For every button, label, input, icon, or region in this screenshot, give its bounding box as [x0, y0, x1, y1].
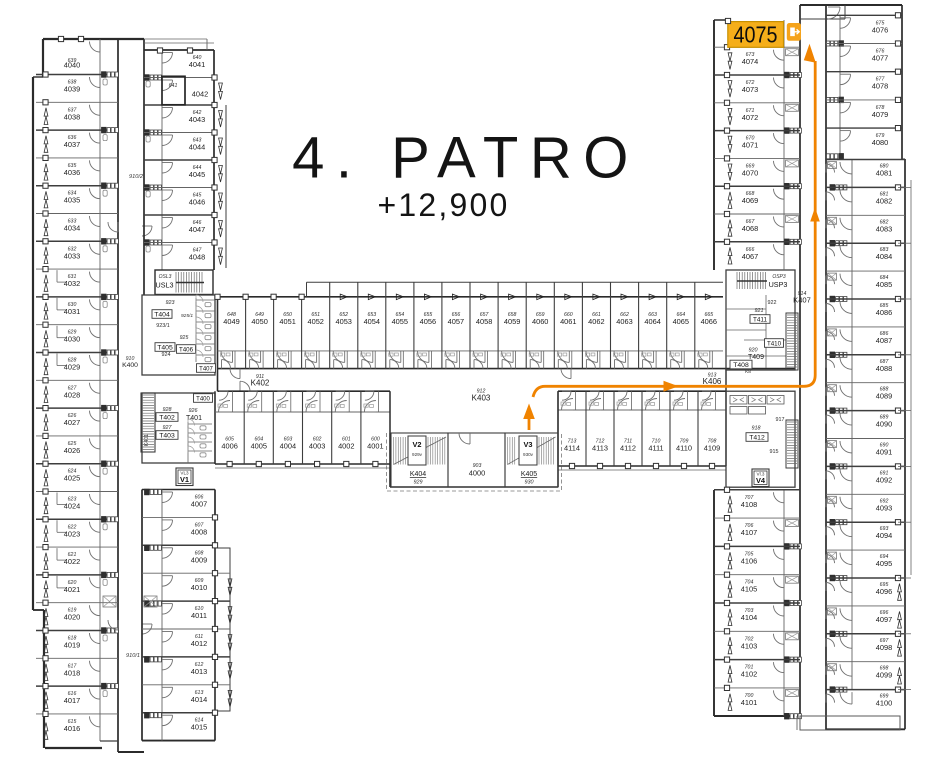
svg-text:4002: 4002 — [338, 442, 354, 451]
svg-text:4063: 4063 — [616, 317, 632, 326]
svg-text:927: 927 — [163, 425, 173, 431]
svg-text:OSL3: OSL3 — [159, 274, 172, 280]
svg-text:4003: 4003 — [309, 442, 325, 451]
svg-text:923: 923 — [166, 300, 175, 306]
svg-text:4070: 4070 — [742, 168, 758, 177]
svg-text:4024: 4024 — [64, 502, 80, 511]
svg-text:K8: K8 — [745, 369, 751, 375]
svg-text:4111: 4111 — [648, 444, 663, 453]
svg-text:4103: 4103 — [741, 641, 757, 650]
svg-text:4073: 4073 — [742, 85, 758, 94]
svg-text:4043: 4043 — [189, 115, 205, 124]
svg-text:4064: 4064 — [644, 317, 660, 326]
svg-text:920: 920 — [749, 348, 758, 354]
svg-text:K401: K401 — [144, 434, 150, 446]
svg-text:4001: 4001 — [367, 442, 383, 451]
svg-text:910/2: 910/2 — [129, 174, 144, 180]
svg-text:4074: 4074 — [742, 57, 758, 66]
svg-text:4040: 4040 — [64, 61, 80, 70]
svg-text:4071: 4071 — [742, 141, 758, 150]
svg-text:4021: 4021 — [64, 585, 80, 594]
svg-text:T406: T406 — [179, 346, 194, 353]
svg-text:4097: 4097 — [876, 615, 892, 624]
svg-text:K402: K402 — [251, 379, 270, 388]
svg-text:4010: 4010 — [191, 583, 207, 592]
svg-text:4038: 4038 — [64, 112, 80, 121]
svg-text:4078: 4078 — [872, 82, 888, 91]
svg-text:4069: 4069 — [742, 196, 758, 205]
svg-text:K407: K407 — [793, 296, 811, 305]
svg-text:4052: 4052 — [307, 317, 323, 326]
svg-text:4065: 4065 — [673, 317, 689, 326]
svg-text:922: 922 — [768, 300, 777, 306]
svg-text:4035: 4035 — [64, 196, 80, 205]
svg-text:4037: 4037 — [64, 140, 80, 149]
svg-text:4019: 4019 — [64, 641, 80, 650]
svg-text:4039: 4039 — [64, 85, 80, 94]
svg-text:4051: 4051 — [279, 317, 295, 326]
svg-text:4089: 4089 — [876, 392, 892, 401]
svg-text:4083: 4083 — [876, 224, 892, 233]
svg-text:4082: 4082 — [876, 196, 892, 205]
svg-text:4058: 4058 — [476, 317, 492, 326]
svg-text:4084: 4084 — [876, 252, 892, 261]
svg-text:4034: 4034 — [64, 224, 80, 233]
svg-text:K404: K404 — [410, 471, 426, 478]
svg-text:4036: 4036 — [64, 168, 80, 177]
svg-text:4018: 4018 — [64, 668, 80, 677]
svg-text:4068: 4068 — [742, 224, 758, 233]
svg-text:4053: 4053 — [335, 317, 351, 326]
svg-text:4092: 4092 — [876, 475, 892, 484]
svg-text:4029: 4029 — [64, 363, 80, 372]
svg-text:4106: 4106 — [741, 556, 757, 565]
svg-text:4077: 4077 — [872, 54, 888, 63]
svg-text:4023: 4023 — [64, 529, 80, 538]
svg-text:4080: 4080 — [872, 138, 888, 147]
svg-text:4102: 4102 — [741, 670, 757, 679]
svg-text:926: 926 — [189, 408, 198, 414]
svg-text:4087: 4087 — [876, 336, 892, 345]
svg-text:T404: T404 — [154, 311, 170, 318]
svg-text:918: 918 — [752, 426, 761, 432]
svg-text:4012: 4012 — [191, 639, 207, 648]
svg-text:4081: 4081 — [876, 169, 892, 178]
svg-text:4005: 4005 — [251, 442, 267, 451]
svg-text:4011: 4011 — [191, 611, 207, 620]
svg-text:4113: 4113 — [592, 444, 608, 453]
svg-text:4055: 4055 — [392, 317, 408, 326]
svg-text:4. PATRO: 4. PATRO — [292, 126, 640, 191]
svg-text:4088: 4088 — [876, 364, 892, 373]
svg-text:4022: 4022 — [64, 557, 80, 566]
svg-text:4059: 4059 — [504, 317, 520, 326]
svg-text:USP3: USP3 — [769, 280, 788, 289]
svg-text:910/1: 910/1 — [126, 653, 140, 659]
svg-text:4028: 4028 — [64, 390, 80, 399]
svg-text:V1: V1 — [180, 475, 189, 484]
svg-text:4099: 4099 — [876, 671, 892, 680]
svg-text:4075: 4075 — [734, 22, 778, 48]
svg-text:4061: 4061 — [560, 317, 576, 326]
svg-text:+12,900: +12,900 — [378, 187, 510, 223]
svg-text:4090: 4090 — [876, 420, 892, 429]
svg-text:4009: 4009 — [191, 555, 207, 564]
svg-text:4093: 4093 — [876, 503, 892, 512]
svg-text:929v: 929v — [412, 452, 423, 457]
svg-text:4067: 4067 — [742, 252, 758, 261]
svg-text:4047: 4047 — [189, 225, 205, 234]
svg-text:4006: 4006 — [221, 442, 237, 451]
svg-text:4033: 4033 — [64, 251, 80, 260]
svg-text:4091: 4091 — [876, 448, 892, 457]
svg-text:4107: 4107 — [741, 528, 757, 537]
svg-text:929: 929 — [414, 480, 423, 486]
svg-text:4056: 4056 — [420, 317, 436, 326]
svg-text:4062: 4062 — [588, 317, 604, 326]
svg-text:924: 924 — [162, 352, 171, 358]
svg-text:T410: T410 — [767, 340, 782, 347]
svg-text:K403: K403 — [472, 394, 491, 403]
svg-text:4031: 4031 — [64, 307, 80, 316]
svg-text:4114: 4114 — [564, 444, 580, 453]
svg-text:4094: 4094 — [876, 531, 892, 540]
svg-text:4049: 4049 — [223, 317, 239, 326]
svg-text:T411: T411 — [753, 316, 768, 323]
svg-text:K400: K400 — [122, 362, 138, 369]
svg-text:4044: 4044 — [189, 143, 205, 152]
svg-text:4095: 4095 — [876, 559, 892, 568]
svg-text:4060: 4060 — [532, 317, 548, 326]
svg-text:T405: T405 — [157, 344, 173, 351]
svg-text:641: 641 — [169, 83, 178, 89]
svg-text:925: 925 — [180, 335, 189, 341]
svg-text:4110: 4110 — [676, 444, 692, 453]
svg-text:4027: 4027 — [64, 418, 80, 427]
svg-text:T407: T407 — [199, 366, 213, 372]
svg-text:4076: 4076 — [872, 25, 888, 34]
svg-text:917: 917 — [776, 417, 785, 423]
svg-text:4100: 4100 — [876, 699, 892, 708]
svg-text:4098: 4098 — [876, 643, 892, 652]
svg-text:4109: 4109 — [704, 444, 720, 453]
svg-text:4101: 4101 — [741, 698, 757, 707]
svg-text:T401: T401 — [186, 415, 202, 422]
svg-text:4085: 4085 — [876, 280, 892, 289]
svg-text:928: 928 — [163, 407, 172, 413]
svg-text:4020: 4020 — [64, 613, 80, 622]
svg-text:4008: 4008 — [191, 527, 207, 536]
svg-text:4072: 4072 — [742, 113, 758, 122]
svg-text:4079: 4079 — [872, 110, 888, 119]
svg-text:V2: V2 — [412, 440, 421, 449]
svg-text:923/1: 923/1 — [156, 323, 170, 329]
svg-text:4041: 4041 — [189, 60, 205, 69]
svg-text:4057: 4057 — [448, 317, 464, 326]
svg-text:K406: K406 — [703, 377, 722, 386]
svg-text:4066: 4066 — [701, 317, 717, 326]
svg-text:4032: 4032 — [64, 279, 80, 288]
svg-text:4096: 4096 — [876, 587, 892, 596]
svg-text:4004: 4004 — [280, 442, 296, 451]
svg-text:925/1: 925/1 — [181, 313, 193, 319]
svg-text:V3: V3 — [523, 440, 532, 449]
svg-text:930v: 930v — [523, 452, 534, 457]
svg-text:4104: 4104 — [741, 613, 757, 622]
svg-text:4112: 4112 — [620, 444, 636, 453]
svg-text:4017: 4017 — [64, 696, 80, 705]
svg-text:4014: 4014 — [191, 695, 207, 704]
svg-text:4046: 4046 — [189, 198, 205, 207]
svg-text:USL3: USL3 — [156, 281, 174, 290]
svg-text:4000: 4000 — [469, 469, 485, 478]
svg-text:4086: 4086 — [876, 308, 892, 317]
svg-text:T408: T408 — [733, 362, 749, 369]
svg-text:4054: 4054 — [364, 317, 380, 326]
svg-text:4050: 4050 — [251, 317, 267, 326]
svg-text:915: 915 — [770, 449, 779, 455]
svg-text:921: 921 — [755, 308, 764, 314]
svg-text:4045: 4045 — [189, 170, 205, 179]
svg-text:4007: 4007 — [191, 500, 207, 509]
svg-text:T403: T403 — [159, 432, 175, 439]
svg-text:4048: 4048 — [189, 253, 205, 262]
svg-text:4025: 4025 — [64, 474, 80, 483]
svg-text:4026: 4026 — [64, 446, 80, 455]
svg-text:4013: 4013 — [191, 667, 207, 676]
svg-text:T400: T400 — [196, 396, 210, 402]
svg-text:4030: 4030 — [64, 335, 80, 344]
svg-text:T402: T402 — [159, 414, 175, 421]
svg-text:4108: 4108 — [741, 500, 757, 509]
svg-text:4016: 4016 — [64, 724, 80, 733]
svg-text:4042: 4042 — [192, 90, 208, 99]
svg-text:4015: 4015 — [191, 723, 207, 732]
svg-text:K405: K405 — [521, 471, 537, 478]
svg-text:V4: V4 — [756, 476, 766, 485]
svg-text:4105: 4105 — [741, 585, 757, 594]
svg-text:930: 930 — [525, 480, 534, 486]
svg-text:T412: T412 — [749, 434, 765, 441]
